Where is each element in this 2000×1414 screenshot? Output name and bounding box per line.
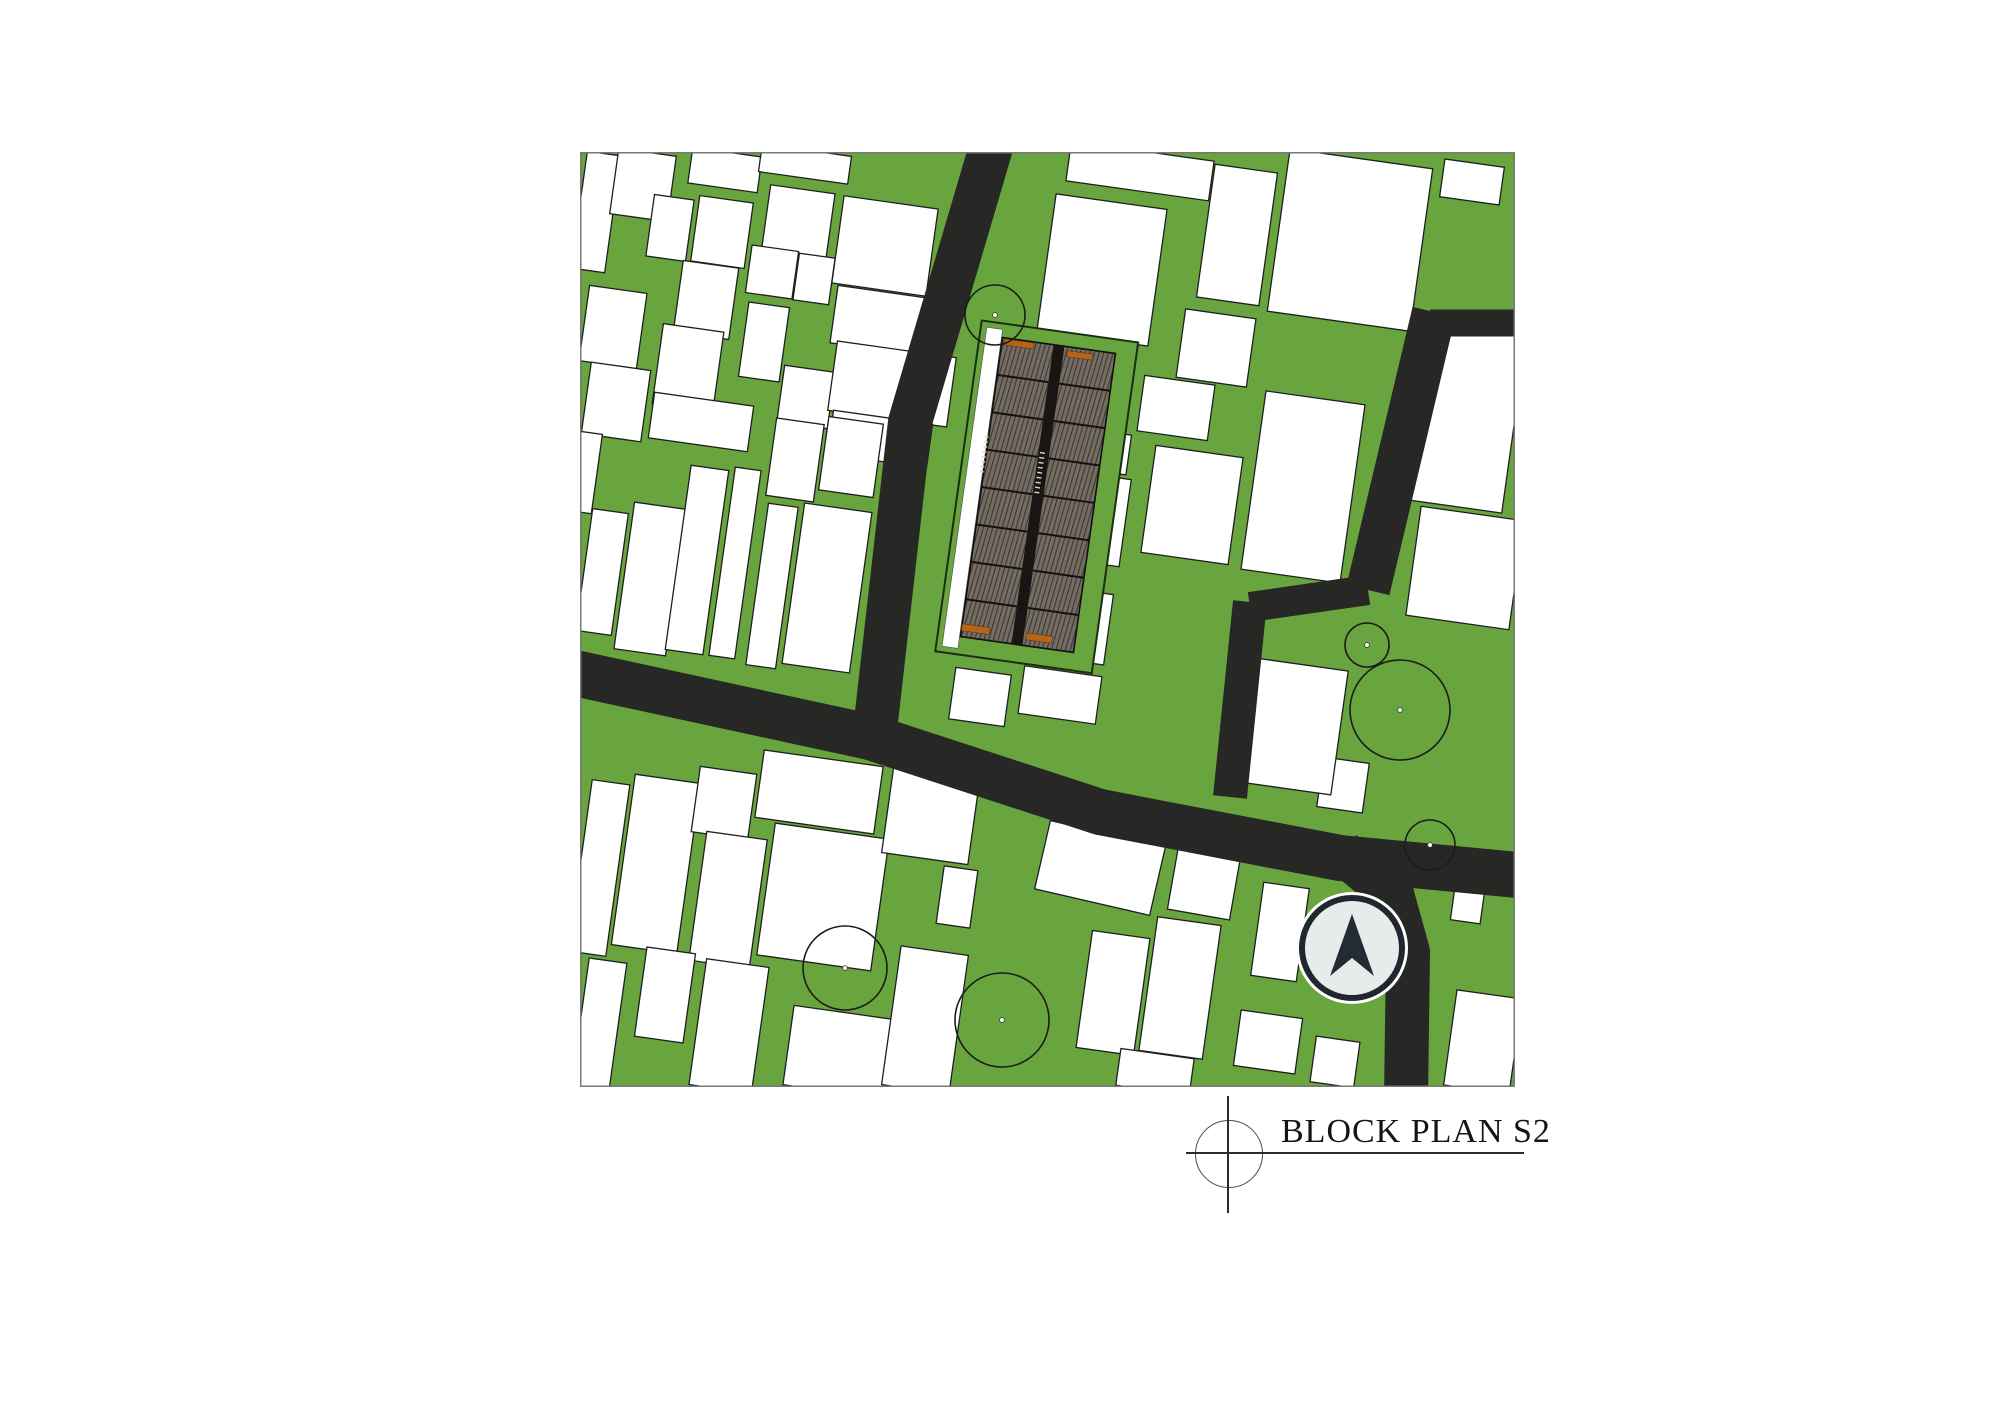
tree-trunk-dot — [993, 313, 998, 318]
tree-trunk-dot — [1428, 843, 1433, 848]
tree-trunk-dot — [843, 966, 848, 971]
map-building-block — [580, 285, 647, 368]
map-building-block — [1444, 990, 1515, 1087]
title-underline — [1186, 1152, 1524, 1154]
map-content — [580, 152, 1515, 1087]
map-building-block — [581, 362, 650, 442]
map-building-block — [757, 823, 889, 971]
tree-trunk-dot — [1365, 643, 1370, 648]
map-building-block — [949, 667, 1012, 726]
map-building-block — [936, 866, 978, 928]
tree-trunk-dot — [1000, 1018, 1005, 1023]
map-building-block — [745, 245, 798, 299]
north-arrow-icon — [1296, 892, 1408, 1004]
map-building-block — [691, 196, 754, 269]
map-building-block — [783, 1005, 893, 1087]
drawing-title: BLOCK PLAN S2 — [1281, 1113, 1551, 1151]
map-building-block — [766, 418, 824, 502]
road-east-jog — [1250, 590, 1368, 607]
map-building-block — [1037, 194, 1167, 346]
map-building-block — [1176, 309, 1256, 387]
map-building-block — [1440, 159, 1505, 205]
map-building-block — [1137, 375, 1215, 440]
map-building-block — [1267, 152, 1432, 331]
road-east-vertical-lower — [1230, 602, 1250, 797]
map-building-block — [832, 196, 938, 296]
map-building-block — [1233, 1010, 1302, 1074]
map-building-block — [1018, 666, 1102, 724]
block-plan-map — [580, 152, 1515, 1087]
map-building-block — [691, 766, 757, 839]
map-building-block — [1141, 445, 1243, 564]
map-building-block — [793, 253, 835, 305]
tree-trunk-dot — [1398, 708, 1403, 713]
map-building-block — [646, 195, 694, 262]
map-building-block — [1406, 506, 1515, 629]
crosshair-vertical-line — [1227, 1096, 1229, 1213]
site-map-svg — [580, 152, 1515, 1087]
map-building-block — [819, 417, 884, 498]
crosshair-icon — [1195, 1120, 1263, 1188]
map-building-block — [1310, 1036, 1360, 1087]
block-plan-page: BLOCK PLAN S2 — [0, 0, 2000, 1414]
